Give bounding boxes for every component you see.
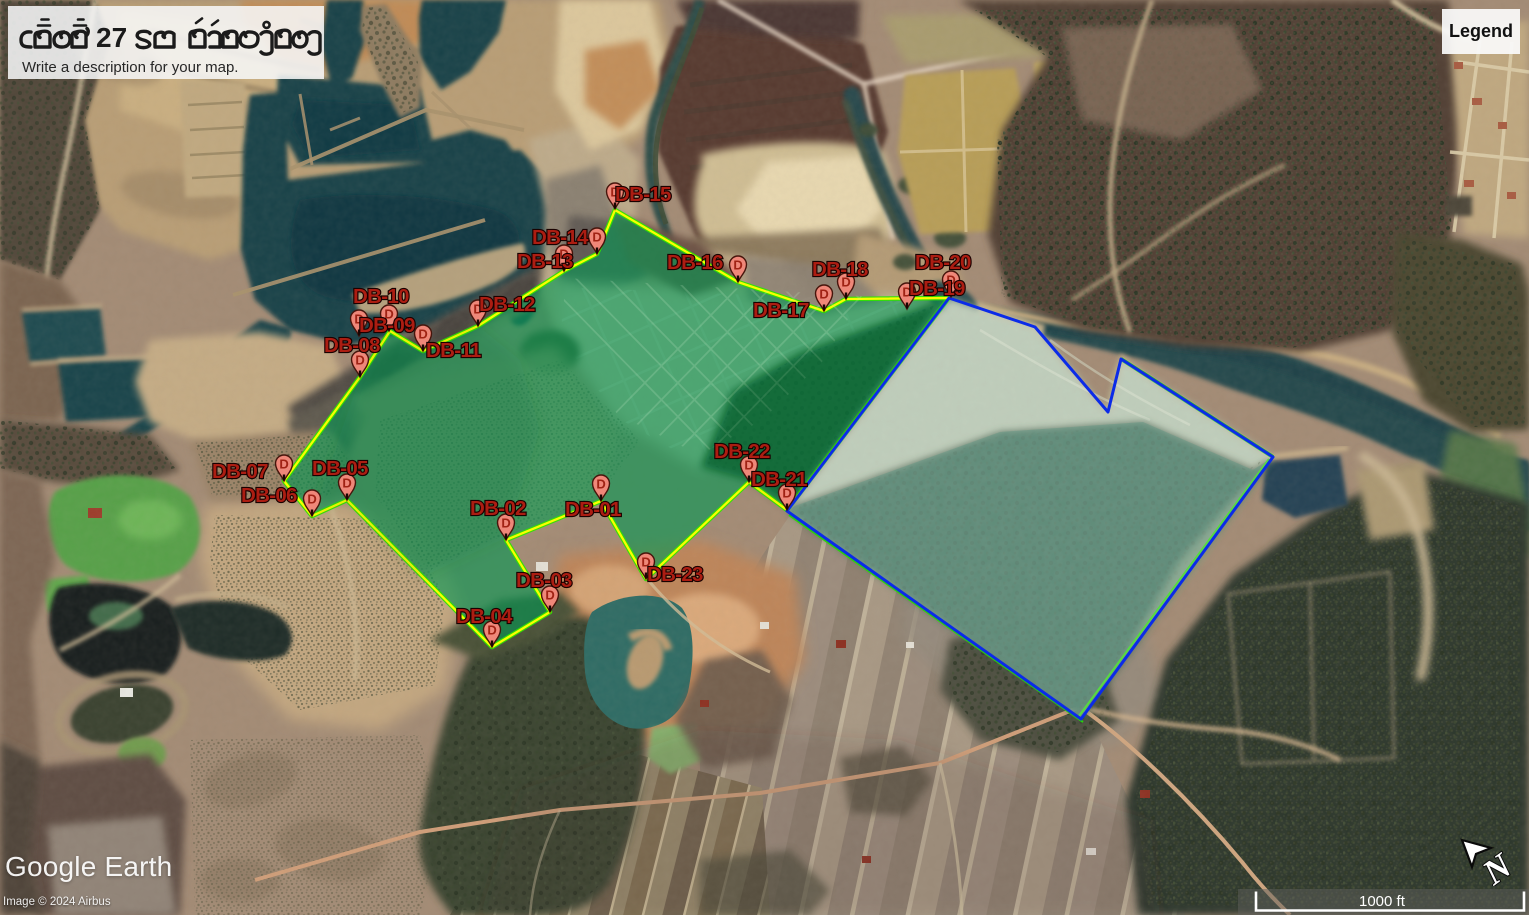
svg-text:DB-15: DB-15 xyxy=(615,183,671,206)
svg-text:DB-11: DB-11 xyxy=(426,339,481,362)
svg-text:DB-13: DB-13 xyxy=(517,250,573,273)
svg-text:D: D xyxy=(733,258,742,273)
svg-text:DB-12: DB-12 xyxy=(479,293,535,316)
svg-text:DB-09: DB-09 xyxy=(359,314,415,337)
svg-text:DB-04: DB-04 xyxy=(456,605,513,628)
svg-text:D: D xyxy=(307,492,316,507)
svg-text:27: 27 xyxy=(96,22,127,53)
svg-text:D: D xyxy=(819,287,828,302)
svg-text:DB-08: DB-08 xyxy=(324,334,380,357)
svg-text:DB-18: DB-18 xyxy=(812,258,868,281)
svg-text:DB-16: DB-16 xyxy=(667,251,723,274)
svg-text:DB-20: DB-20 xyxy=(915,251,971,274)
svg-text:DB-05: DB-05 xyxy=(312,457,368,480)
svg-text:DB-19: DB-19 xyxy=(909,277,965,300)
svg-text:DB-03: DB-03 xyxy=(516,569,572,592)
svg-text:DB-02: DB-02 xyxy=(470,497,526,520)
svg-text:D: D xyxy=(596,477,605,492)
svg-text:DB-06: DB-06 xyxy=(241,484,297,507)
svg-text:1000 ft: 1000 ft xyxy=(1359,893,1406,910)
svg-text:DB-23: DB-23 xyxy=(647,563,703,586)
svg-text:DB-22: DB-22 xyxy=(714,440,770,463)
svg-text:DB-01: DB-01 xyxy=(565,498,621,521)
svg-text:DB-21: DB-21 xyxy=(751,468,807,491)
svg-text:Write a description for your m: Write a description for your map. xyxy=(22,59,238,76)
svg-text:D: D xyxy=(592,230,601,245)
svg-text:DB-10: DB-10 xyxy=(353,285,409,308)
svg-text:D: D xyxy=(279,457,288,472)
svg-text:DB-17: DB-17 xyxy=(753,299,809,322)
svg-text:DB-07: DB-07 xyxy=(212,460,268,483)
svg-text:DB-14: DB-14 xyxy=(532,226,589,249)
